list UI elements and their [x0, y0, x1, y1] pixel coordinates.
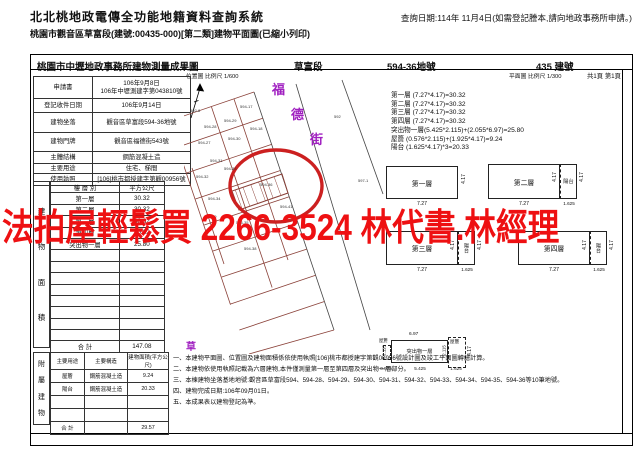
parcel-number: 594-17: [240, 104, 253, 109]
floor-plan-2-label: 第二層: [514, 177, 534, 187]
info-row: 申請書106年9月8日 106年中壢測建字第043810號: [34, 77, 191, 99]
document-subtitle: 桃園市觀音區草富段(建號:00435-000)[第二類]建物平面圖(已縮小列印): [30, 27, 310, 40]
info-value: 住宅、梯間: [93, 164, 191, 174]
floor-plan-2-balcony-width: 1.625: [557, 201, 581, 206]
annex-building-block: 附屬建物 主要用途主要構造建物面積(平方公尺)屋簷鋼筋混凝土造9.24陽台鋼筋混…: [33, 352, 169, 435]
balcony-label: 陽台: [563, 178, 573, 185]
balcony-label: 陽台: [595, 243, 602, 253]
system-title: 北北桃地政電傳全功能地籍資料查詢系統: [30, 8, 264, 25]
info-row: 登記收件日期106年9月14日: [34, 99, 191, 113]
info-value: 106年9月14日: [93, 99, 191, 113]
measurement-line: 第四層 (7.27*4.17)=30.32: [391, 118, 524, 127]
floor-row: [51, 261, 165, 272]
info-label: 主要用途: [34, 164, 93, 174]
parcel-number: 594-31: [210, 158, 223, 163]
street-name-label: 福德街: [271, 82, 323, 147]
info-row: 主體結構鋼筋混凝土造: [34, 152, 191, 164]
advertisement-watermark: 法拍屋輕鬆買 2266-3524 林代書.林經理: [2, 197, 559, 251]
building-info-table: 申請書106年9月8日 106年中壢測建字第043810號登記收件日期106年9…: [33, 76, 191, 186]
floor-row: [51, 250, 165, 261]
floor-plan-2-balcony: 陽台: [560, 164, 577, 199]
parcel-number: 594-33: [224, 166, 237, 171]
floor-row: [51, 273, 165, 284]
parcel-number: 594-29: [224, 118, 237, 123]
note-line: 二、本建物依使用執照記載為六層建物,本件僅測量第一層至第四層及突出物一層部分。: [173, 365, 633, 376]
floor-plan-2-balcony-height: 4.17: [579, 168, 585, 186]
measurement-line: 陽台 (1.625*4.17)*3=20.33: [391, 144, 524, 153]
floor-plan-4-height: 4.17: [582, 236, 588, 254]
floor-plan-1: 第一層: [386, 166, 458, 199]
floor-plan-1-height: 4.17: [461, 170, 467, 188]
floor-header-row: 樓 層 別平方公尺: [51, 182, 165, 193]
parcel-number: 594-28: [204, 124, 217, 129]
parcel-number: 594-27: [198, 140, 211, 145]
sheet-title: 桃園市中壢地政事務所建物測量成果圖: [37, 59, 199, 73]
note-line: 一、本建物平面圖、位置圖及建物面積係依使用執照[106]桃市都授建字第觀0095…: [173, 354, 633, 365]
info-row: 建物坐落觀音區草富段594-36地號: [34, 113, 191, 133]
measurement-line: 第三層 (7.27*4.17)=30.32: [391, 109, 524, 118]
eave-right-label: 屋簷: [450, 339, 459, 345]
floor-plan-scale: 平面圖 比例尺 1/300: [509, 71, 562, 80]
measurement-line: 第一層 (7.27*4.17)=30.32: [391, 92, 524, 101]
floor-row: [51, 295, 165, 306]
street-name-char: 福: [271, 82, 285, 97]
annex-header-row: 主要用途主要構造建物面積(平方公尺): [51, 353, 169, 370]
parcel-number: 597-1: [358, 178, 369, 183]
floor-row: [51, 330, 165, 341]
parcel-number: 594-36: [260, 182, 273, 187]
info-label: 建物坐落: [34, 113, 93, 133]
floor-row: [51, 284, 165, 295]
floor-plan-drawings: 第一層 7.27 4.17 第二層 陽台 4.17 4.17 7.27 1.62…: [379, 158, 635, 380]
floor-plan-4-balcony: 陽台: [590, 231, 607, 265]
info-label: 登記收件日期: [34, 99, 93, 113]
parcel-number: 594-18: [250, 126, 263, 131]
map-corner-label: 草: [186, 340, 196, 353]
land-query-printout-page: { "header": { "system_title": "北北桃地政電傳全功…: [0, 0, 640, 452]
floor-plan-2-height: 4.17: [552, 168, 558, 186]
page-info: 共1頁 第1頁: [587, 71, 621, 80]
measurement-line: 屋簷 (0.576*2.115)+(1.925*4.17)=9.24: [391, 136, 524, 145]
annex-row: [51, 409, 169, 422]
street-name-char: 德: [291, 107, 304, 122]
note-line: 五、本成果表以建物登記為準。: [173, 398, 633, 409]
annex-side-label: 附屬建物: [33, 352, 50, 425]
protrusion-top-dim: 6.97: [409, 332, 418, 337]
floor-plan-1-label: 第一層: [412, 178, 432, 188]
parcel-number: 592: [334, 114, 341, 119]
floor-row: [51, 307, 165, 318]
note-line: 四、建物完成日期:106年09月01日。: [173, 387, 633, 398]
section-name: 草富段: [294, 59, 323, 73]
info-row: 建物門牌觀音區福德街543號: [34, 133, 191, 152]
floor-plan-4-balcony-width: 1.625: [587, 267, 611, 272]
floor-plan-2: 第二層: [488, 164, 560, 199]
floor-plan-3-balcony-width: 1.625: [455, 267, 479, 272]
title-divider: [31, 69, 632, 70]
annex-building-table: 主要用途主要構造建物面積(平方公尺)屋簷鋼筋混凝土造9.24陽台鋼筋混凝土造20…: [50, 352, 169, 435]
parcel-number: 592-8: [190, 108, 201, 113]
info-label: 申請書: [34, 77, 93, 99]
street-name-char: 街: [309, 132, 323, 147]
land-number: 594-36地號: [387, 59, 436, 73]
info-value: 觀音區福德街543號: [93, 133, 191, 152]
info-value: 觀音區草富段594-36地號: [93, 113, 191, 133]
info-table-body: 申請書106年9月8日 106年中壢測建字第043810號登記收件日期106年9…: [34, 77, 191, 186]
info-row: 主要用途住宅、梯間: [34, 164, 191, 174]
annex-row: 屋簷鋼筋混凝土造9.24: [51, 370, 169, 383]
floor-row: [51, 318, 165, 329]
note-line: 三、本棟建物坐落基地地號:觀音區草富段594、594-28、594-29、594…: [173, 376, 633, 387]
floor-plan-4-balcony-height: 4.17: [609, 236, 615, 254]
floor-plan-3-width: 7.27: [386, 267, 458, 273]
annex-row: 陽台鋼筋混凝土造20.33: [51, 383, 169, 396]
parcel-number: 594-30: [228, 136, 241, 141]
floor-total-row: 合 計147.08: [51, 341, 165, 352]
measurement-formulas: 第一層 (7.27*4.17)=30.32第二層 (7.27*4.17)=30.…: [391, 92, 524, 153]
info-label: 主體結構: [34, 152, 93, 164]
notes-list: 一、本建物平面圖、位置圖及建物面積係依使用執照[106]桃市都授建字第觀0095…: [173, 354, 633, 409]
floor-plan-4-width: 7.27: [518, 267, 590, 273]
parcel-number: 594-32: [196, 174, 209, 179]
info-label: 建物門牌: [34, 133, 93, 152]
measurement-line: 突出物一層(5.425*2.115)+(2.055*6.97)=25.80: [391, 127, 524, 136]
annex-row: [51, 396, 169, 409]
annex-total-row: 合 計29.57: [51, 422, 169, 435]
info-value: 鋼筋混凝土造: [93, 152, 191, 164]
annex-table-body: 主要用途主要構造建物面積(平方公尺)屋簷鋼筋混凝土造9.24陽台鋼筋混凝土造20…: [51, 353, 169, 435]
query-date: 查詢日期:114年 11月4日(如需登記謄本,請向地政事務所申請。): [401, 12, 632, 24]
info-value: 106年9月8日 106年中壢測建字第043810號: [93, 77, 191, 99]
